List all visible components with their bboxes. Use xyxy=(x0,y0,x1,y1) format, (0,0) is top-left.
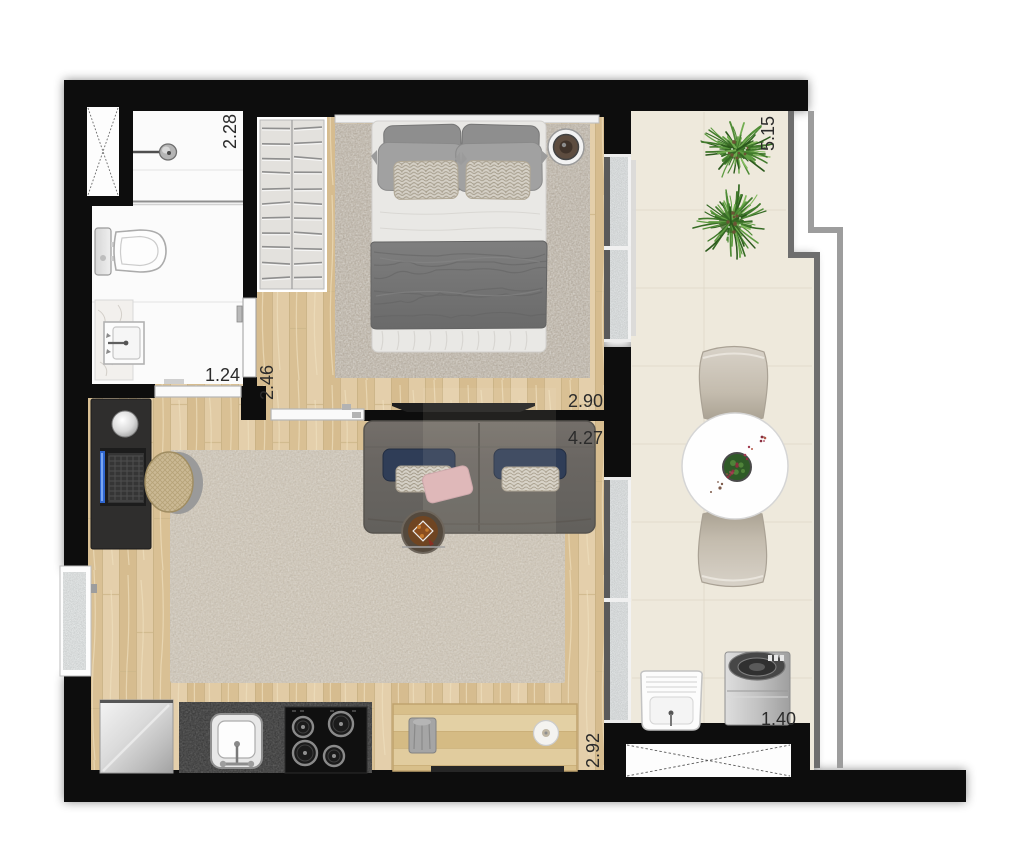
svg-text:1.40: 1.40 xyxy=(761,709,796,729)
svg-text:1.24: 1.24 xyxy=(205,365,240,385)
svg-text:5.15: 5.15 xyxy=(758,116,778,151)
svg-text:2.46: 2.46 xyxy=(257,365,277,400)
svg-text:2.92: 2.92 xyxy=(583,733,603,768)
svg-text:2.90: 2.90 xyxy=(568,391,603,411)
svg-text:4.27: 4.27 xyxy=(568,428,603,448)
svg-text:2.28: 2.28 xyxy=(220,114,240,149)
